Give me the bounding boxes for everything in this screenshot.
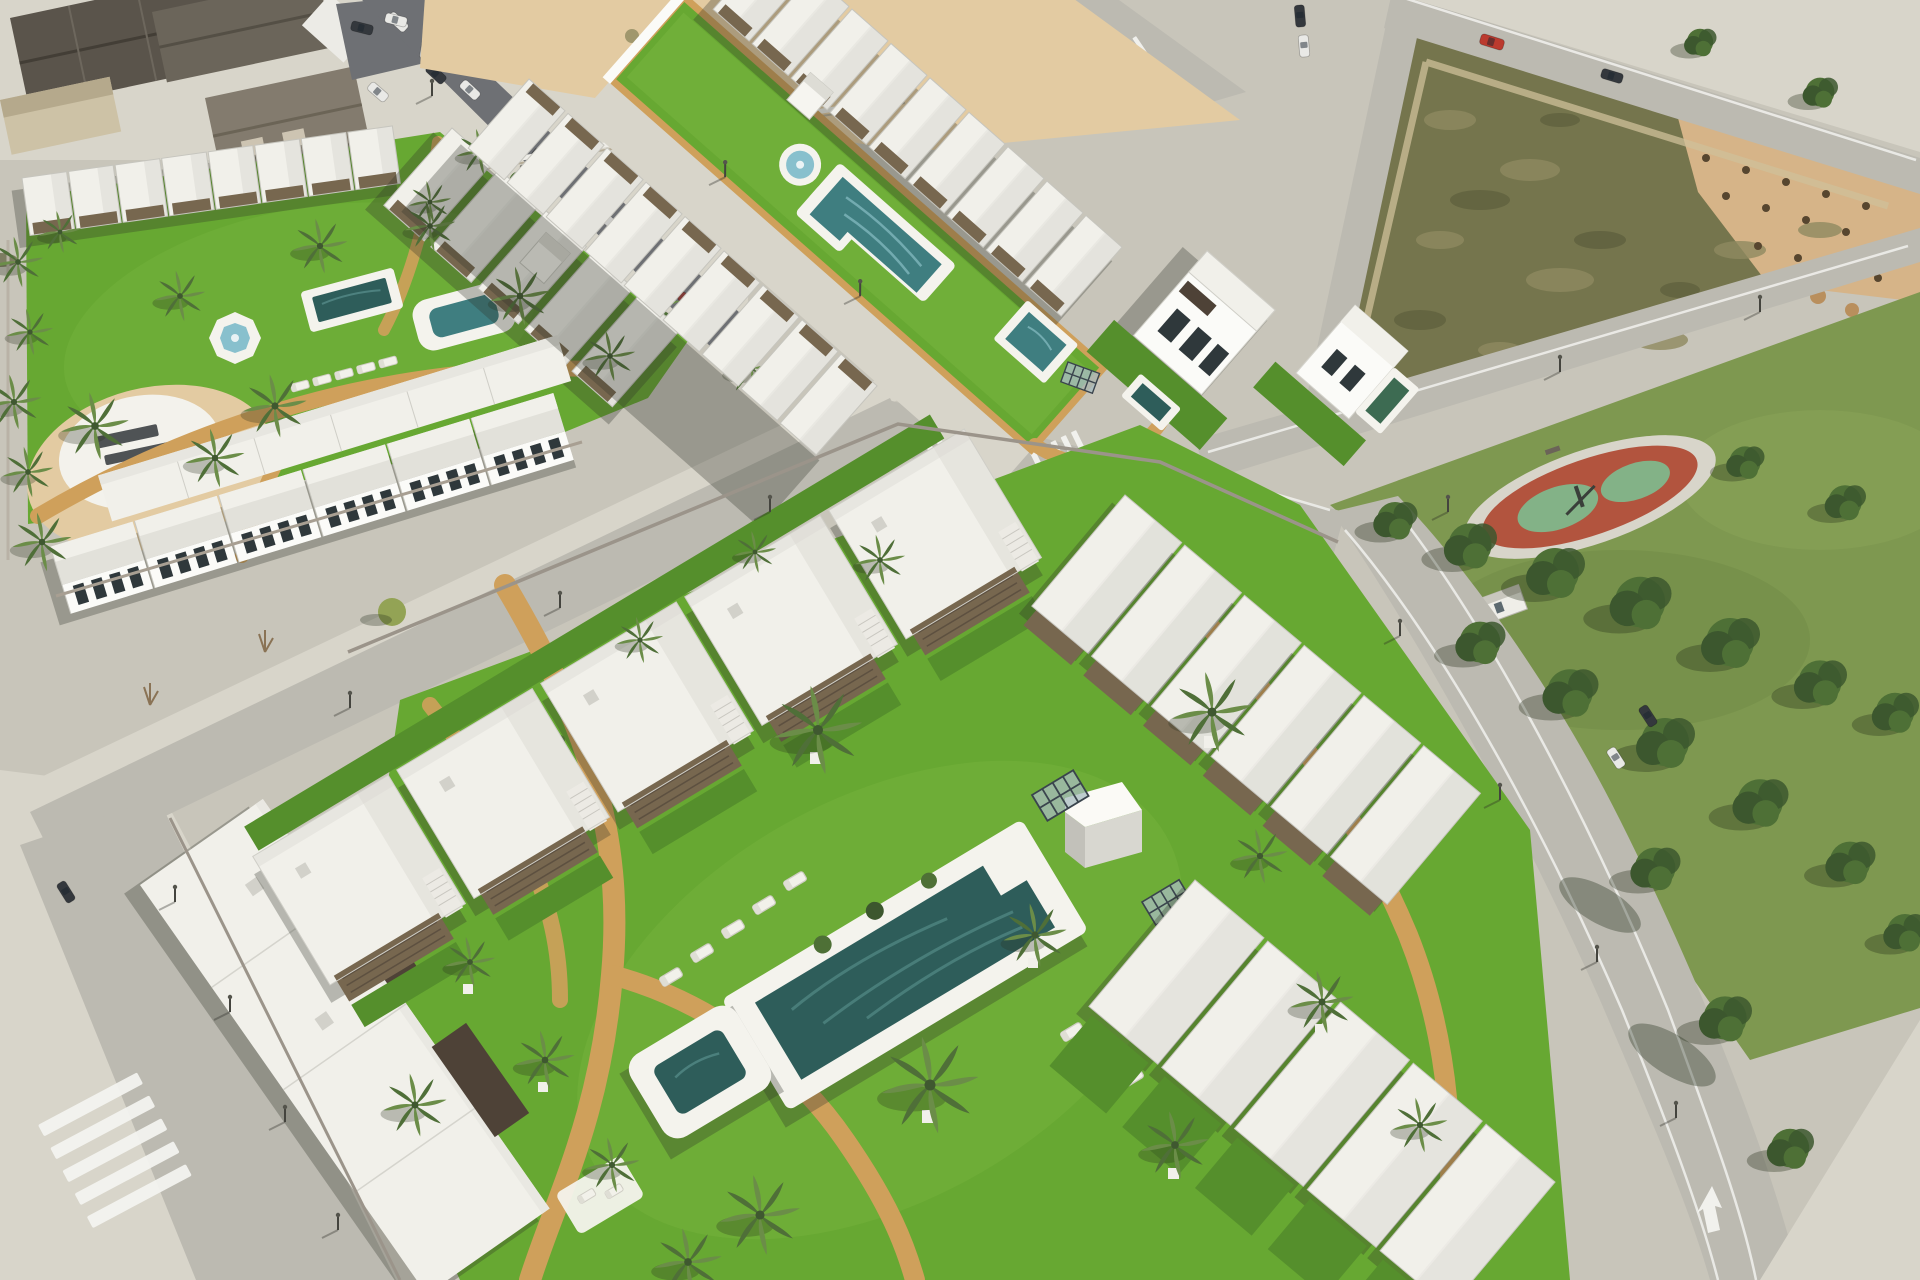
townhouse-unit <box>115 159 168 223</box>
aerial-render-photo: Oblique aerial 3D render of a coastal re… <box>0 0 1920 1280</box>
townhouse-unit <box>162 152 215 216</box>
townhouse-unit <box>69 165 122 229</box>
townhouse-unit <box>208 146 261 210</box>
townhouse-unit <box>301 132 354 196</box>
aerial-development-scene: Oblique aerial 3D render of a coastal re… <box>0 0 1920 1280</box>
townhouse-unit <box>255 139 308 203</box>
